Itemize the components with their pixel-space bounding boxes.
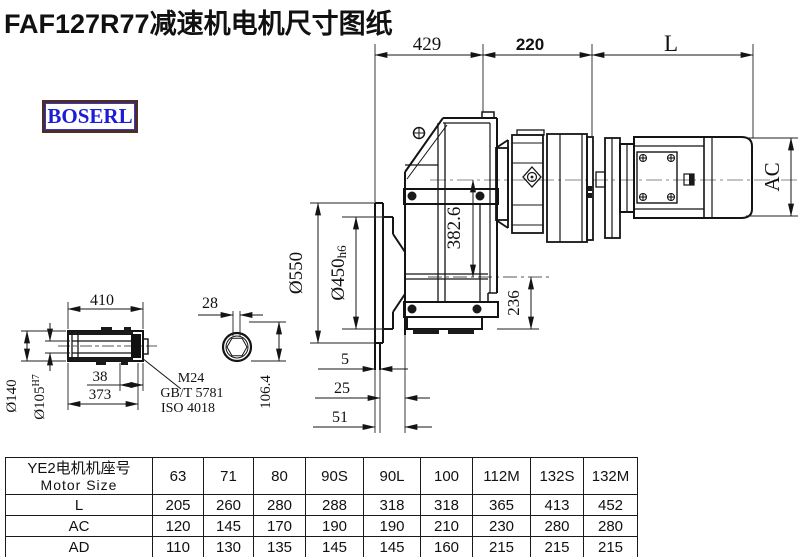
table-header-motor-size: YE2电机机座号Motor Size [6,458,153,495]
flange-bolt-icon [408,192,417,201]
table-cell: 230 [473,516,531,537]
flange-bolt-icon [408,305,417,314]
dim-429: 429 [413,34,442,55]
table-column-header: 90S [306,458,364,495]
output-flange [375,203,405,370]
table-row: L205260280288318318365413452 [6,495,638,516]
dim-236: 236 [504,290,523,316]
dim-5: 5 [341,351,349,368]
extension-lines [21,44,798,433]
row-label: AC [6,516,153,537]
table-column-header: 90L [364,458,421,495]
row-label: L [6,495,153,516]
table-cell: 280 [584,516,638,537]
table-column-header: 80 [254,458,306,495]
dim-51: 51 [332,409,348,426]
leader-line [142,358,181,389]
table-cell: 110 [153,537,204,557]
row-label: AD [6,537,153,557]
table-column-header: 112M [473,458,531,495]
dim-410: 410 [90,292,114,309]
table-column-header: 63 [153,458,204,495]
table-cell: 365 [473,495,531,516]
table-header-row: YE2电机机座号Motor Size63718090S90L100112M132… [6,458,638,495]
dim-25: 25 [334,380,350,397]
table-cell: 190 [306,516,364,537]
table-cell: 130 [204,537,254,557]
note-thread: M24 [178,371,204,386]
table-cell: 318 [421,495,473,516]
note-standard-gb: GB/T 5781 [160,386,223,401]
table-cell: 190 [364,516,421,537]
dim-dia140: Ø140 [4,379,20,412]
dim-dia105H7: Ø105H7 [31,374,48,420]
dim-38: 38 [93,369,108,385]
motor-bolt-icons [640,155,675,201]
table-cell: 280 [531,516,584,537]
note-standard-iso: ISO 4018 [161,401,215,416]
table-cell: 170 [254,516,306,537]
flange-bolt-icon [476,192,485,201]
dimension-lines [27,55,791,427]
table-row: AD110130135145145160215215215 [6,537,638,557]
dim-382-6: 382.6 [444,207,465,250]
table-cell: 135 [254,537,306,557]
table-cell: 452 [584,495,638,516]
table-cell: 280 [254,495,306,516]
table-cell: 215 [584,537,638,557]
page: FAF127R77减速机电机尺寸图纸 BOSERL [0,0,800,557]
dim-L: L [664,31,678,56]
table-cell: 260 [204,495,254,516]
hollow-shaft-detail [68,327,181,389]
table-cell: 318 [364,495,421,516]
table-cell: 145 [306,537,364,557]
shaft-end-view [223,333,251,361]
dim-dia550: Ø550 [286,252,307,294]
table-cell: 160 [421,537,473,557]
table-column-header: 132M [584,458,638,495]
table-row: AC120145170190190210230280280 [6,516,638,537]
table-cell: 145 [204,516,254,537]
table-column-header: 71 [204,458,254,495]
table-cell: 288 [306,495,364,516]
size-table: YE2电机机座号Motor Size63718090S90L100112M132… [5,457,638,557]
table-cell: 120 [153,516,204,537]
table-cell: 145 [364,537,421,557]
dim-28: 28 [202,295,218,312]
dim-dia450h6: Ø450h6 [328,245,349,301]
dim-220: 220 [516,35,544,54]
table-cell: 210 [421,516,473,537]
table-column-header: 100 [421,458,473,495]
table-column-header: 132S [531,458,584,495]
table-cell: 215 [531,537,584,557]
table-cell: 413 [531,495,584,516]
flange-bolt-icon [473,305,482,314]
dim-AC: AC [760,162,784,191]
dim-106-4: 106.4 [258,375,274,409]
input-adapter [496,130,620,242]
table-cell: 205 [153,495,204,516]
motor [620,137,752,218]
dim-373: 373 [89,387,112,403]
table-cell: 215 [473,537,531,557]
